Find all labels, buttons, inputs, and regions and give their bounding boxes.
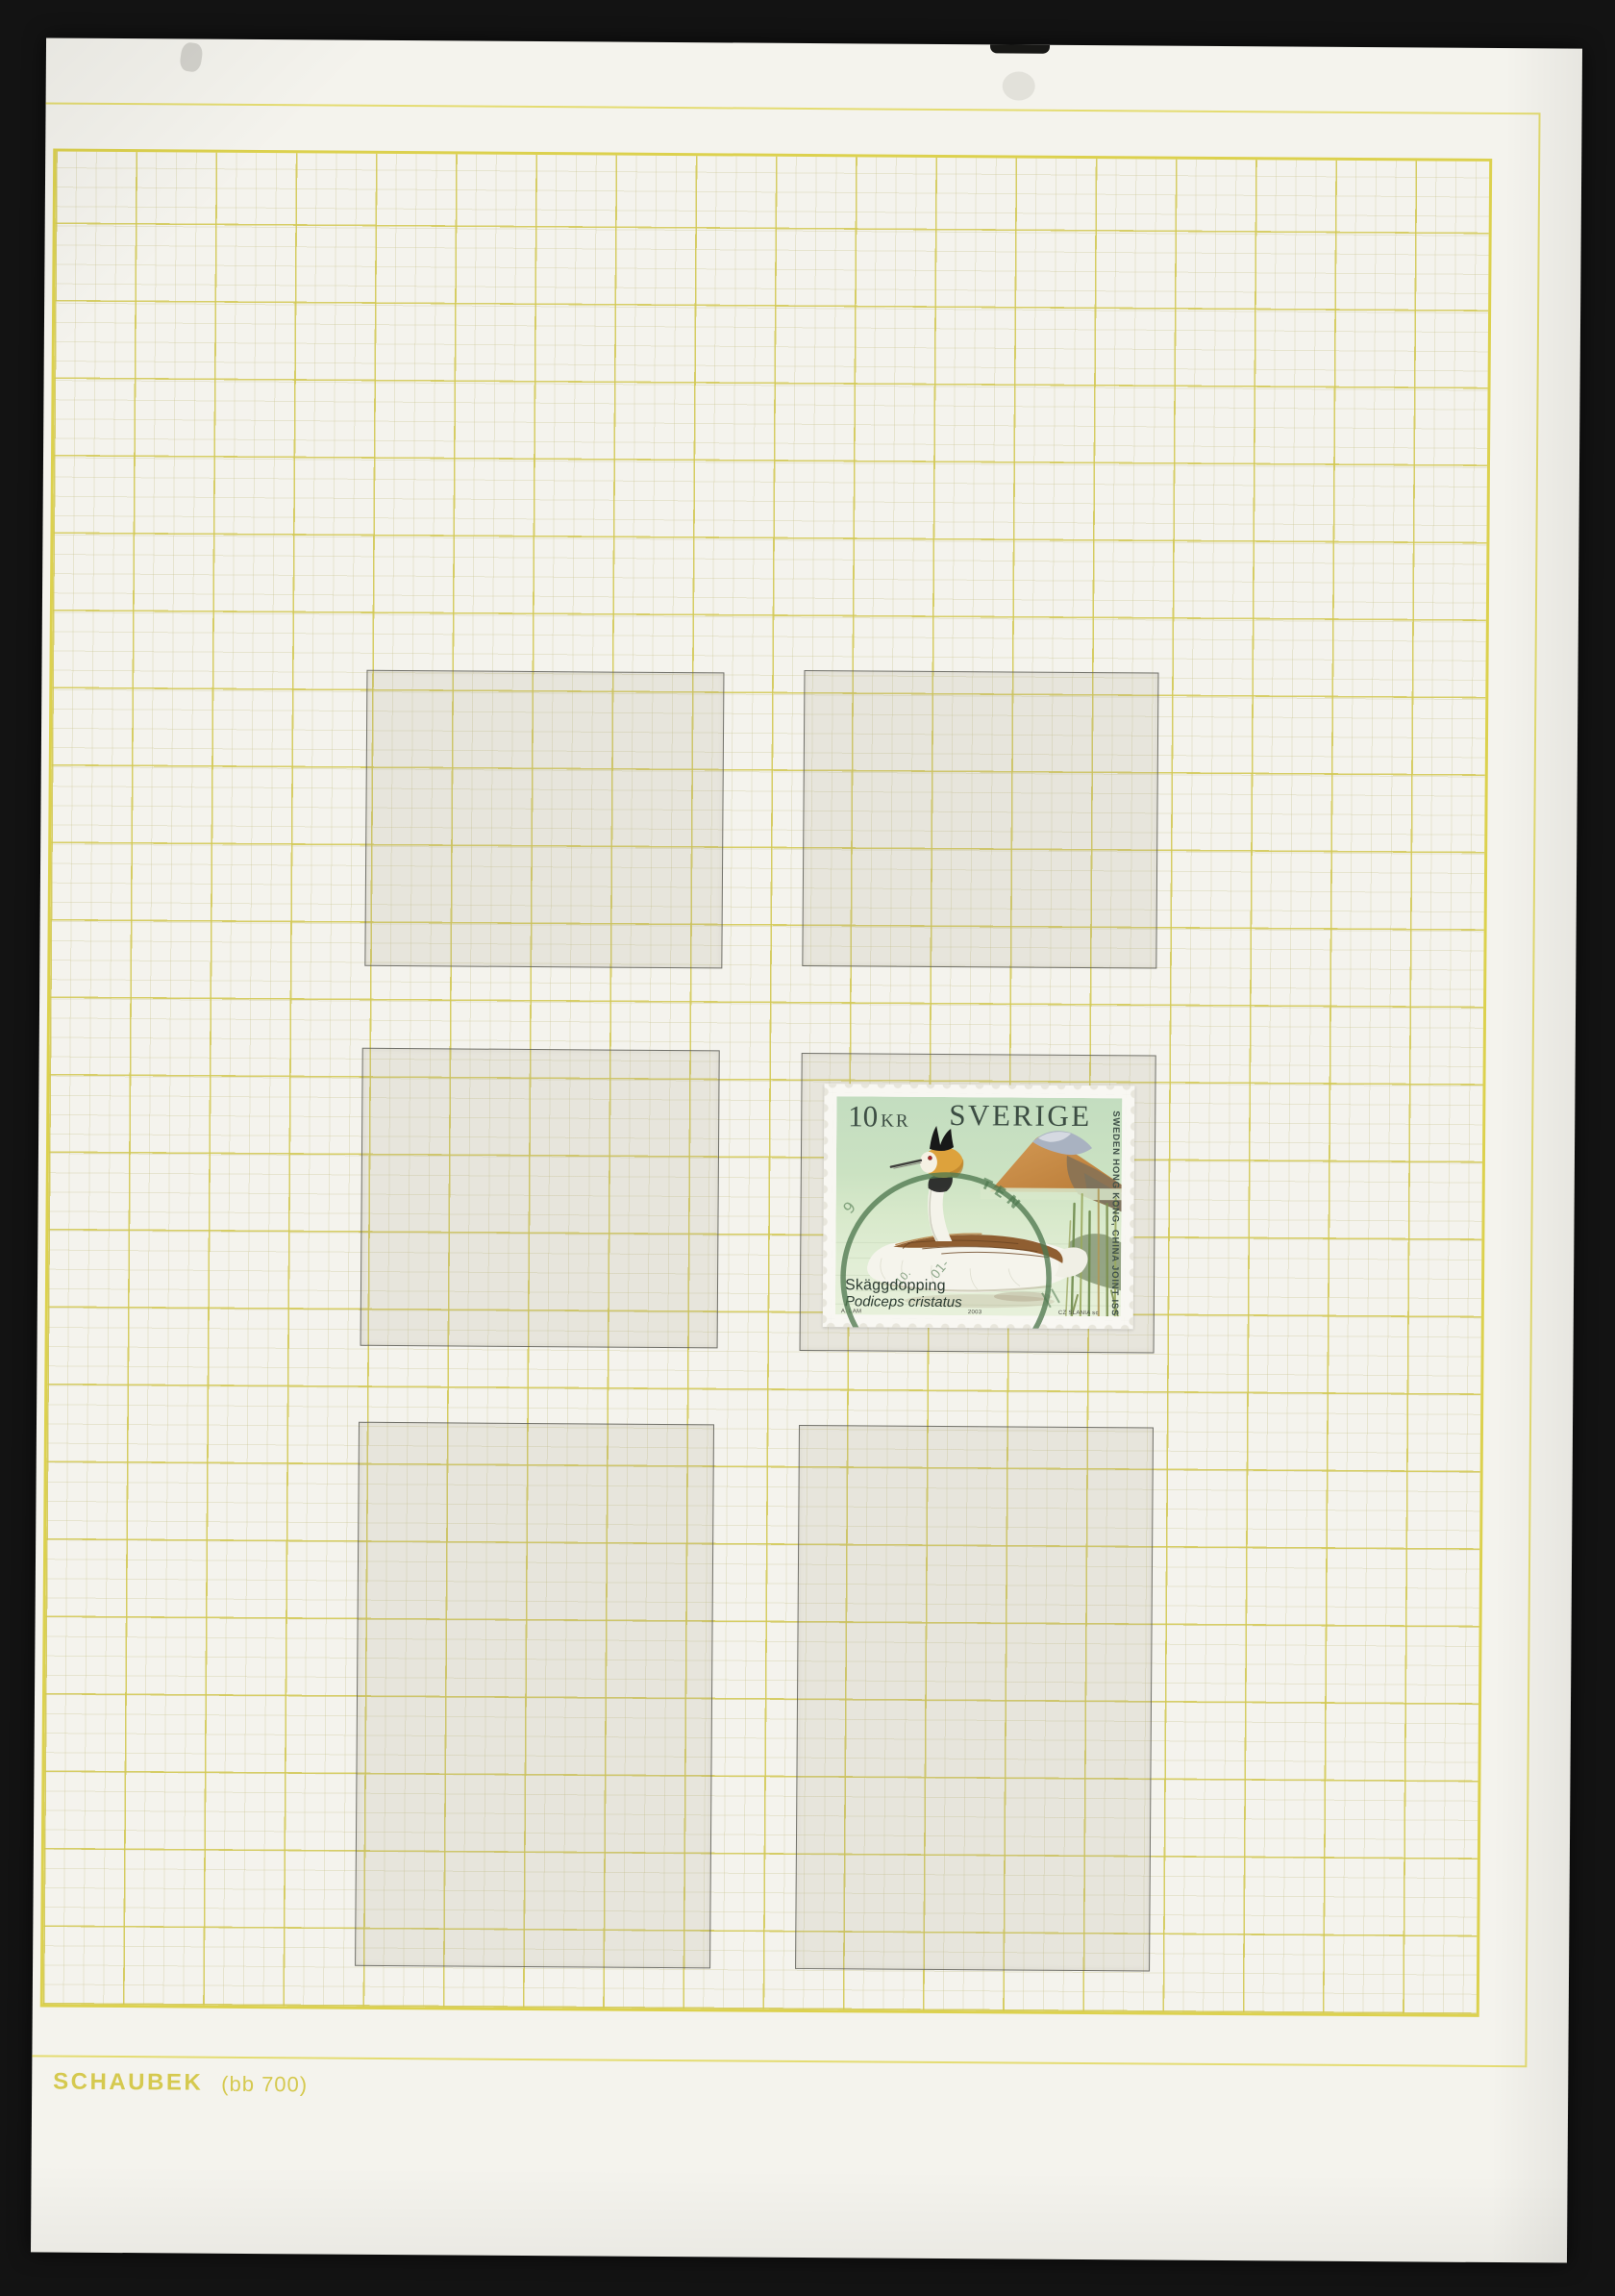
country-name: SVERIGE bbox=[949, 1100, 1092, 1131]
joint-issue-inscription: SWEDEN HONG KONG, CHINA JOINT ISSUE bbox=[1109, 1111, 1121, 1312]
page-code: (bb 700) bbox=[221, 2072, 308, 2098]
stamp-sweden-10kr: 10KR SVERIGE SWEDEN HONG KONG, CHINA JOI… bbox=[823, 1084, 1135, 1329]
stamp-mount-empty-1 bbox=[364, 670, 724, 969]
issue-year: 2003 bbox=[968, 1310, 982, 1315]
stamp-mount-empty-2 bbox=[802, 670, 1158, 969]
graph-grid bbox=[40, 149, 1492, 2017]
punch-hole-shadow bbox=[1003, 71, 1035, 100]
stamp-mount-empty-4 bbox=[355, 1422, 714, 1969]
species-latin-name: Podiceps cristatus bbox=[845, 1293, 962, 1310]
publisher-brand: SCHAUBEK bbox=[53, 2069, 203, 2097]
denomination: 10KR bbox=[848, 1101, 910, 1132]
album-page: 10KR SVERIGE SWEDEN HONG KONG, CHINA JOI… bbox=[31, 37, 1582, 2262]
denomination-value: 10 bbox=[848, 1099, 878, 1133]
page-footer: SCHAUBEK (bb 700) bbox=[32, 2068, 1568, 2117]
stamp-artwork: 10KR SVERIGE SWEDEN HONG KONG, CHINA JOI… bbox=[835, 1096, 1123, 1316]
denomination-unit: KR bbox=[881, 1111, 910, 1132]
stamp-mount-empty-3 bbox=[360, 1048, 720, 1349]
scanner-background: 10KR SVERIGE SWEDEN HONG KONG, CHINA JOI… bbox=[0, 0, 1615, 2296]
designer-credit: A. LAM bbox=[841, 1309, 862, 1314]
binder-edge-smudge bbox=[179, 41, 204, 73]
species-common-name: Skäggdopping bbox=[845, 1277, 946, 1295]
punch-hole-notch bbox=[990, 44, 1050, 53]
engraver-credit: CZ SLANIA sc bbox=[1058, 1310, 1099, 1316]
stamp-mount-empty-5 bbox=[795, 1425, 1154, 1972]
